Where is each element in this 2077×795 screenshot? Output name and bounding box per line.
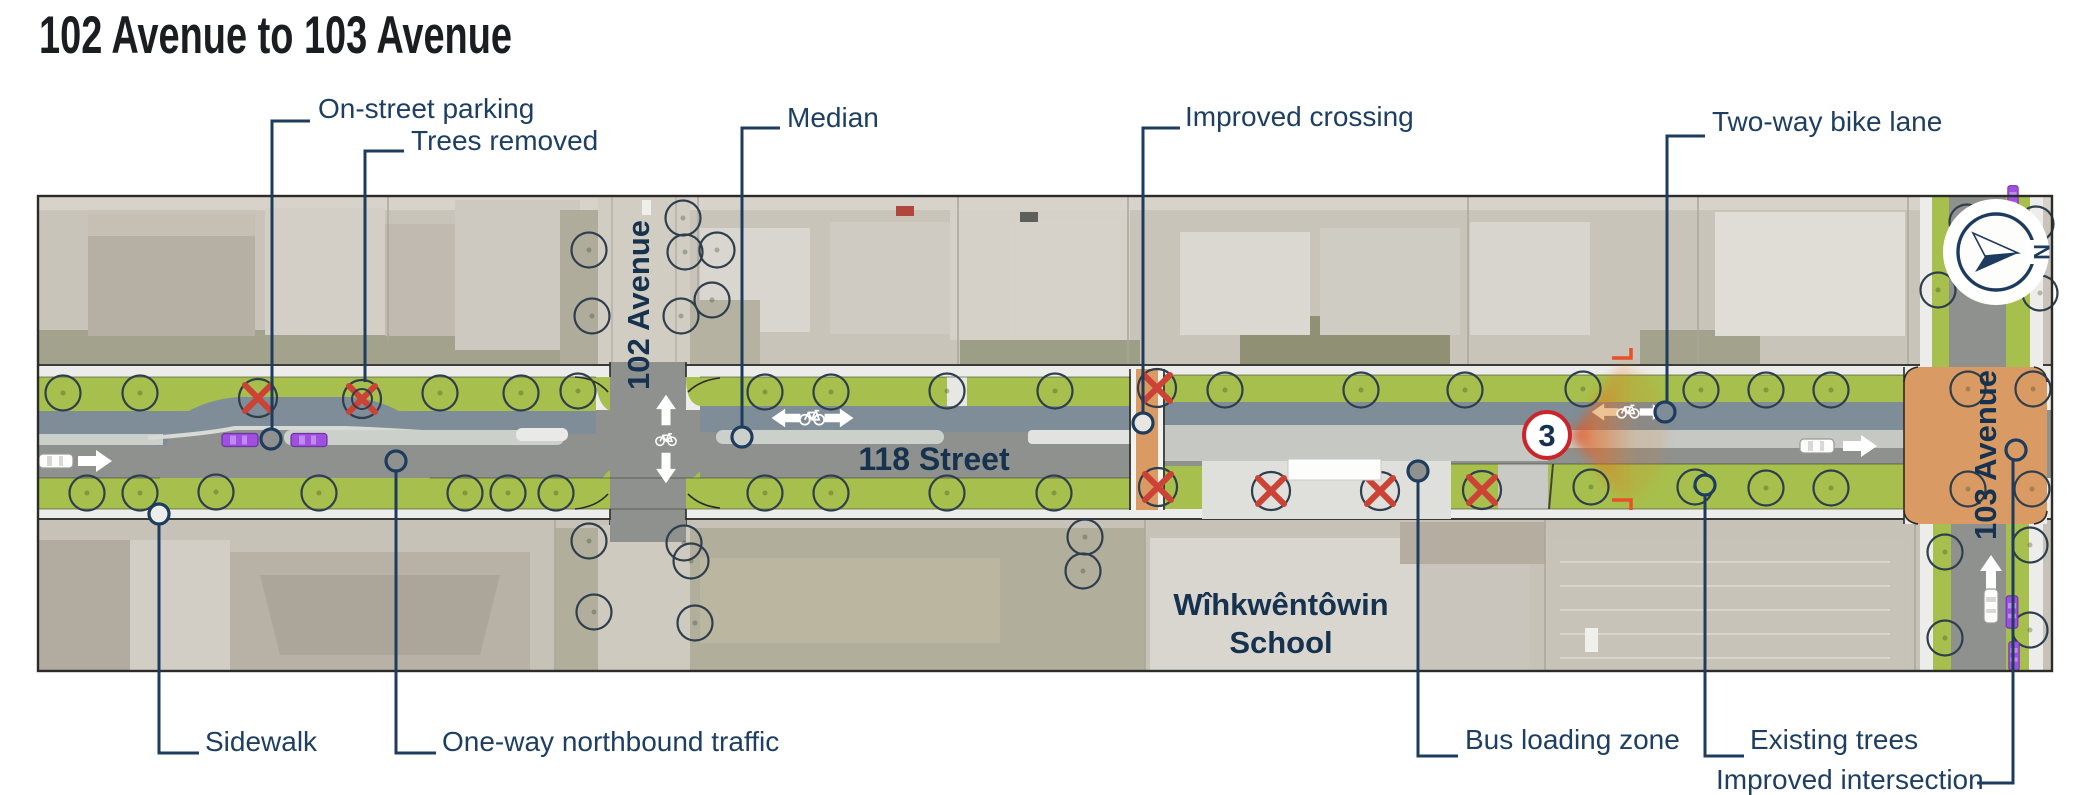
svg-text:3: 3 xyxy=(1538,418,1555,453)
svg-text:Existing trees: Existing trees xyxy=(1750,724,1918,755)
svg-text:Wîhkwêntôwin: Wîhkwêntôwin xyxy=(1173,587,1388,622)
svg-text:Improved crossing: Improved crossing xyxy=(1185,101,1414,132)
svg-text:103 Avenue: 103 Avenue xyxy=(1968,370,2003,540)
svg-text:Trees removed: Trees removed xyxy=(411,125,598,156)
svg-text:Bus loading zone: Bus loading zone xyxy=(1465,724,1680,755)
svg-text:Sidewalk: Sidewalk xyxy=(205,726,318,757)
svg-text:N: N xyxy=(2029,244,2054,260)
svg-text:Two-way bike lane: Two-way bike lane xyxy=(1712,106,1942,137)
svg-text:One-way northbound traffic: One-way northbound traffic xyxy=(442,726,779,757)
svg-text:On-street parking: On-street parking xyxy=(318,93,534,124)
svg-text:School: School xyxy=(1229,625,1332,660)
svg-text:102 Avenue: 102 Avenue xyxy=(621,220,656,390)
svg-text:Median: Median xyxy=(787,102,879,133)
svg-text:Improved intersection: Improved intersection xyxy=(1716,764,1984,795)
svg-text:102 Avenue to 103 Avenue: 102 Avenue to 103 Avenue xyxy=(39,6,512,65)
svg-text:118 Street: 118 Street xyxy=(858,441,1010,477)
